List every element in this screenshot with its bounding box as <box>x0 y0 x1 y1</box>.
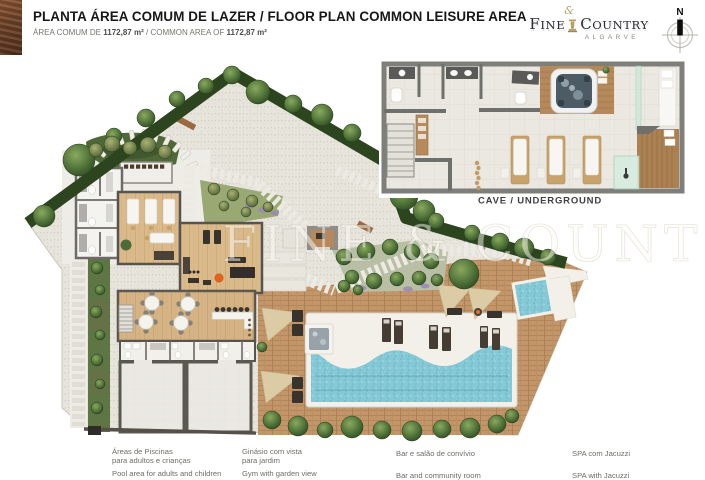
logo-wordmark: FINE & COUNTRY <box>536 13 642 33</box>
compass-north-label: N <box>676 7 683 18</box>
washrooms-strip <box>120 341 255 361</box>
cave-underground-plan: CAVE / UNDERGROUND <box>379 58 687 207</box>
brochure-page: FINE & COUNTRY <box>0 0 705 480</box>
main-pool <box>305 313 517 407</box>
spa-loungers <box>501 136 601 184</box>
logo-word-fine: FINE <box>529 15 565 33</box>
inset-label: CAVE / UNDERGROUND <box>478 196 602 207</box>
floor-plan-canvas: FINE & COUNTRY <box>0 0 705 480</box>
area-pt-label: ÁREA COMUM DE <box>33 28 101 37</box>
treatment-room <box>118 192 180 264</box>
logo-word-country: COUNTRY <box>580 15 648 33</box>
area-pt-value: 1172,87 m² <box>103 28 143 37</box>
column-icon: & <box>566 13 579 33</box>
area-en-label: COMMON AREA OF <box>150 28 224 37</box>
pool-jacuzzi <box>305 324 333 354</box>
pedestal-icon <box>566 15 579 33</box>
page-title: PLANTA ÁREA COMUM DE LAZER / FLOOR PLAN … <box>33 9 527 24</box>
logo-region: ALGARVE <box>536 34 642 41</box>
terrace <box>120 162 172 183</box>
sauna <box>637 126 679 188</box>
bar-lounge <box>118 291 255 341</box>
shower <box>614 156 639 189</box>
fire-bowl <box>474 308 482 316</box>
spa-jacuzzi <box>540 66 614 114</box>
exercise-ball <box>215 274 223 282</box>
glass-partition <box>636 66 641 130</box>
compass-icon: N <box>660 4 700 56</box>
brand-watermark: FINE & COUNTRY <box>222 215 705 273</box>
spa-bench <box>659 68 676 126</box>
area-en-value: 1172,87 m² <box>226 28 266 37</box>
stairs <box>119 305 133 332</box>
left-garden-path <box>70 256 110 432</box>
cave-shelf <box>416 115 428 155</box>
multipurpose-rooms <box>120 360 251 432</box>
cave-stairs <box>387 124 414 177</box>
area-subtitle: ÁREA COMUM DE 1172,87 m² / COMMON AREA O… <box>33 28 267 37</box>
separator: / <box>146 28 148 37</box>
brand-logo: FINE & COUNTRY ALGARVE <box>536 13 642 41</box>
brand-accent-bar <box>0 0 22 55</box>
